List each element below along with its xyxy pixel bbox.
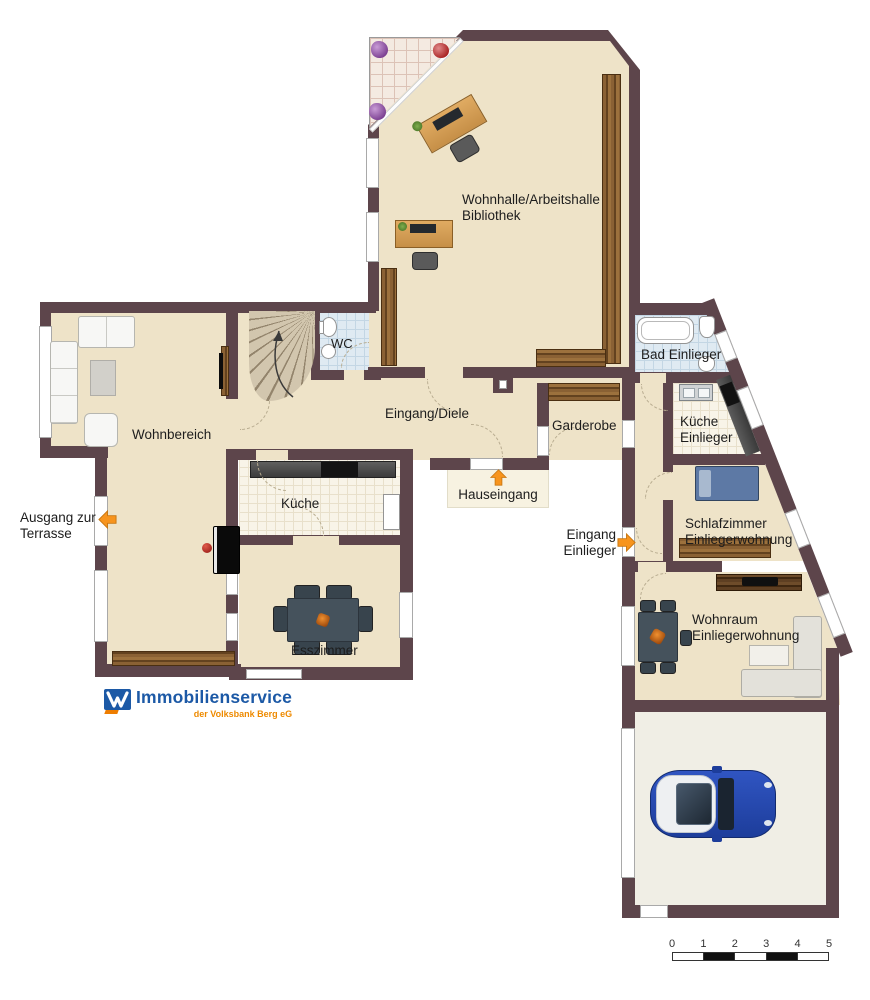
pillar-core: [499, 380, 507, 389]
annotation-ausgang-terrasse: Ausgang zur Terrasse: [20, 510, 96, 542]
window: [366, 138, 379, 188]
wall: [95, 446, 107, 677]
car-mirror: [712, 766, 722, 773]
car-mirror: [712, 835, 722, 842]
scale-bar: 0 1 2 3 4 5: [672, 938, 832, 966]
plant-icon: [398, 222, 407, 231]
wall: [40, 302, 376, 313]
flower-pot-icon: [433, 43, 449, 58]
door-opening: [622, 420, 635, 448]
wall: [826, 648, 839, 910]
room-label-wc: WC: [331, 336, 353, 351]
volksbank-logo-icon: [104, 689, 131, 715]
wall: [628, 700, 828, 712]
door-opening: [226, 613, 238, 641]
window: [94, 570, 108, 642]
tv-icon: [742, 577, 778, 586]
room-label-eingang-diele: Eingang/Diele: [385, 406, 469, 422]
door-opening: [537, 426, 549, 456]
chair-icon: [680, 630, 692, 646]
scale-segment: [704, 953, 735, 960]
monitor-icon: [410, 224, 436, 233]
logo-subtitle-text: der Volksbank Berg eG: [194, 709, 292, 719]
scale-segment: [735, 953, 766, 960]
toilet-tank-icon: [319, 321, 324, 334]
bathtub-inner: [641, 321, 690, 340]
wardrobe-icon: [548, 383, 620, 401]
room-label-wohnraum: Wohnraum Einliegerwohnung: [692, 612, 799, 644]
scale-tick: 2: [732, 938, 738, 950]
coffee-table-icon: [749, 645, 789, 666]
annotation-hauseingang: Hauseingang: [458, 487, 538, 503]
window: [246, 669, 302, 679]
fridge-icon: [383, 494, 400, 530]
wall: [400, 449, 413, 680]
room-label-schlafzimmer: Schlafzimmer Einliegerwohnung: [685, 516, 792, 548]
tv-icon: [219, 353, 223, 389]
garage-side-door: [640, 905, 668, 918]
scale-tick: 3: [763, 938, 769, 950]
room-label-bad-einlieger: Bad Einlieger: [641, 347, 721, 363]
car-icon: [650, 770, 776, 838]
scale-tick: 4: [795, 938, 801, 950]
door-opening: [344, 370, 364, 380]
room-label-esszimmer: Esszimmer: [291, 643, 358, 659]
room-label-kueche: Küche: [281, 496, 319, 512]
window: [621, 606, 635, 666]
bathtub-icon: [637, 317, 694, 344]
flower-pot-icon: [371, 41, 388, 58]
door-opening: [293, 536, 339, 545]
scale-segment: [673, 953, 704, 960]
scale-tick: 5: [826, 938, 832, 950]
desk-group: [392, 220, 456, 274]
scale-bar-strip: [672, 952, 829, 961]
bookshelf-icon: [381, 268, 397, 366]
office-chair-icon: [412, 252, 438, 270]
scale-tick: 0: [669, 938, 675, 950]
volksbank-logo-underline: [104, 710, 118, 714]
window: [399, 592, 413, 638]
piano-icon: [213, 526, 240, 574]
scale-segment: [767, 953, 798, 960]
scale-segment: [798, 953, 828, 960]
room-label-kueche-einlieger: Küche Einlieger: [680, 414, 733, 446]
stairs-direction-arrow-icon: [249, 311, 315, 401]
sink-bowl: [698, 388, 710, 398]
room-label-garderobe: Garderobe: [552, 418, 617, 434]
door-opening: [640, 373, 666, 383]
hauseingang-label-box: Hauseingang: [447, 464, 549, 508]
chair-icon: [273, 606, 288, 632]
sink-bowl: [683, 388, 695, 398]
annotation-eingang-einlieger: Eingang Einlieger: [554, 527, 616, 559]
stairs-icon: [249, 311, 315, 401]
chair-icon: [640, 662, 656, 674]
wall: [663, 454, 765, 465]
stove-icon: [321, 462, 358, 477]
chair-icon: [640, 600, 656, 612]
immobilienservice-logo: Immobilienservice der Volksbank Berg eG: [104, 689, 292, 719]
door-opening: [256, 450, 288, 460]
corner-sofa-icon: [741, 669, 822, 697]
car-sunroof: [676, 783, 712, 825]
scale-tick: 1: [700, 938, 706, 950]
arrow-right-icon: [617, 533, 636, 552]
wall: [226, 449, 412, 460]
sofa-icon: [78, 316, 135, 348]
sideboard-icon: [112, 651, 235, 666]
window: [366, 212, 379, 262]
car-windshield: [718, 778, 734, 830]
door-opening: [425, 367, 463, 379]
floor-plan: Wohnhalle/Arbeitshalle Bibliothek Wohnbe…: [0, 0, 870, 1000]
sink-icon: [699, 316, 715, 338]
armchair-icon: [84, 413, 118, 447]
sofa-icon: [50, 341, 78, 424]
logo-brand-text: Immobilienservice: [136, 689, 292, 707]
bed-icon: [695, 466, 759, 501]
scale-bar-ticks: 0 1 2 3 4 5: [672, 938, 829, 951]
sink-unit-icon: [679, 384, 713, 401]
chair-icon: [660, 600, 676, 612]
bookshelf-icon: [602, 74, 621, 364]
ball-icon: [202, 543, 212, 553]
arrow-up-icon: [490, 469, 507, 486]
car-headlight: [764, 782, 772, 788]
chair-icon: [358, 606, 373, 632]
car-headlight: [764, 820, 772, 826]
coffee-table-icon: [90, 360, 116, 396]
room-label-wohnbereich: Wohnbereich: [132, 427, 211, 443]
door-opening: [638, 562, 666, 572]
window: [621, 728, 635, 878]
flower-pot-icon: [369, 103, 386, 120]
room-label-wohnhalle: Wohnhalle/Arbeitshalle Bibliothek: [462, 192, 600, 224]
arrow-left-icon: [98, 510, 117, 529]
bookshelf-icon: [536, 349, 606, 367]
pillow-icon: [699, 470, 711, 497]
wall: [622, 561, 722, 572]
chair-icon: [660, 662, 676, 674]
